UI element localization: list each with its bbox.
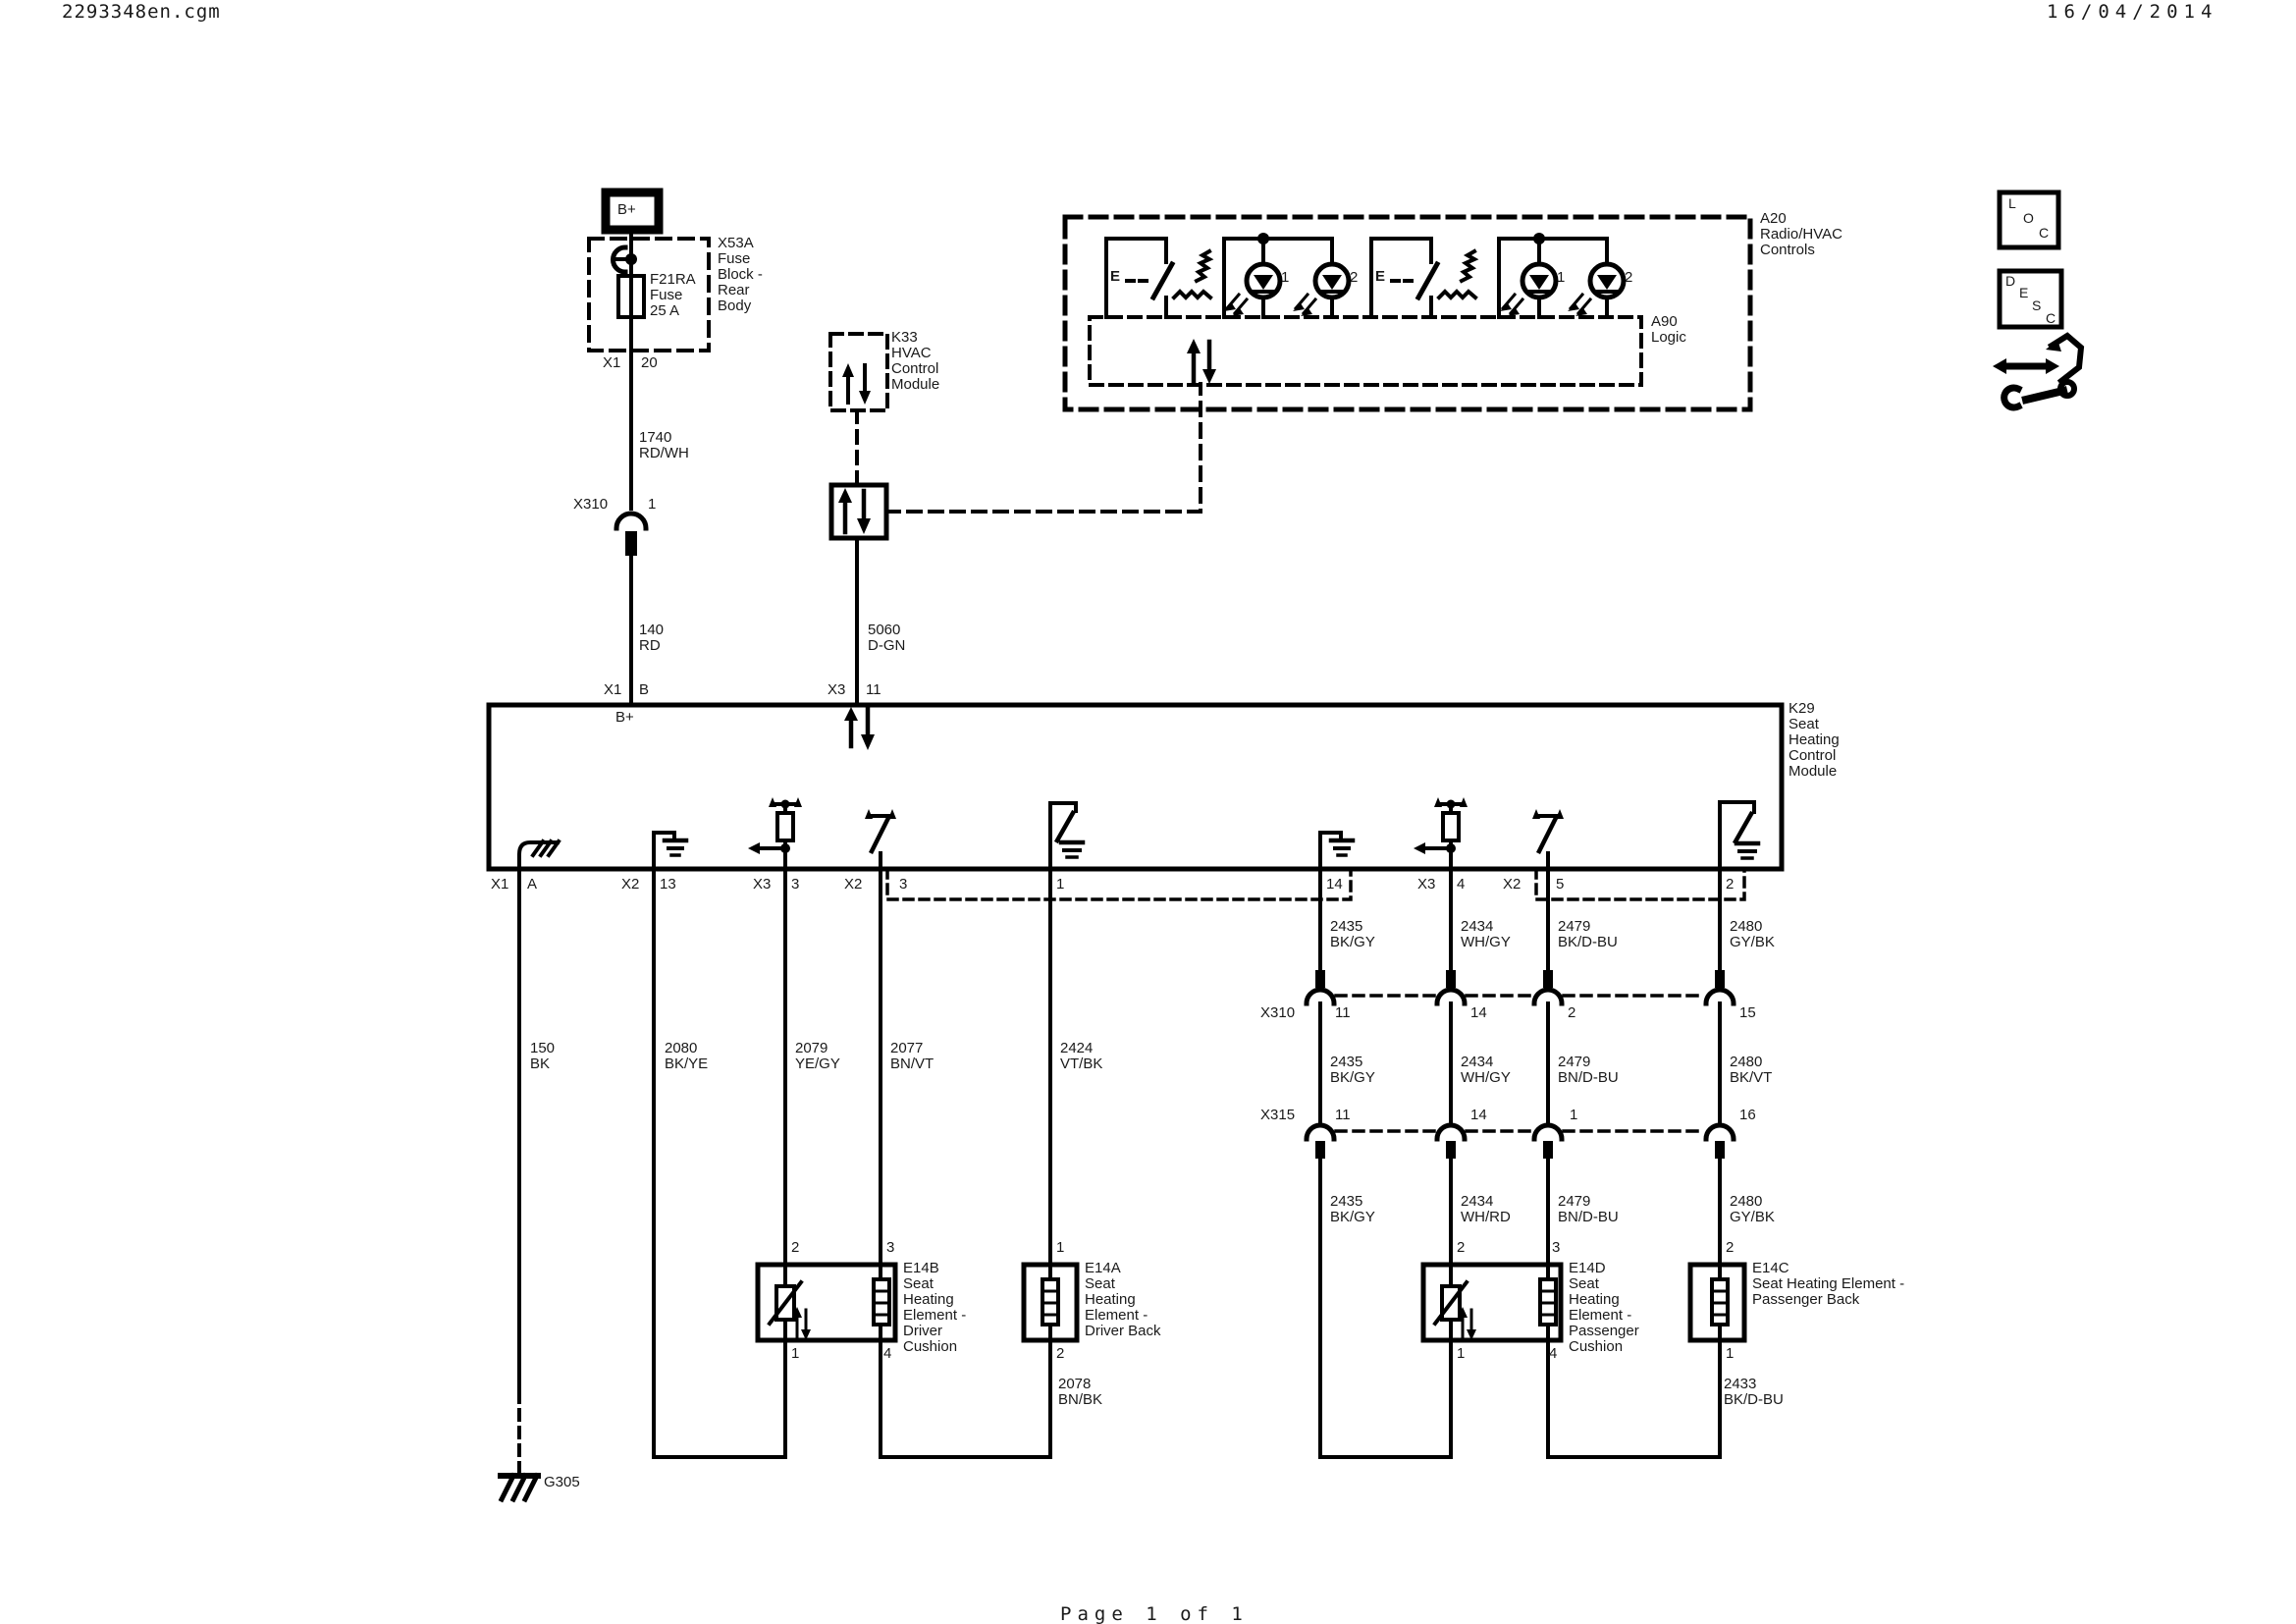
k29-module-box: [489, 705, 1782, 869]
e14d-label: E14D Seat Heating Element - Passenger Cu…: [1569, 1261, 1639, 1355]
loc-icon-letter: L: [2008, 196, 2016, 210]
wire-140-label: 140 RD: [639, 623, 664, 654]
k29-bottom-pin: 1: [1056, 877, 1064, 893]
k29-bottom-connector: X2: [1503, 877, 1521, 893]
k33-module-box: [830, 334, 887, 410]
wire-label-2435-lower: 2435 BK/GY: [1330, 1194, 1375, 1225]
k29-internal-chassis-link: [519, 841, 559, 869]
desc-icon-letter: S: [2032, 298, 2041, 312]
k29-internal-switch-ground-1: [1050, 803, 1083, 869]
k29-bplus-label: B+: [615, 710, 634, 726]
desc-icon-letter: E: [2019, 286, 2028, 299]
e14a-pin: 2: [1056, 1346, 1064, 1362]
k29-internal-driver-output-2: [1414, 797, 1468, 869]
wrench-arrow-icon: [1993, 336, 2081, 407]
k29-bottom-connector: X3: [1417, 877, 1435, 893]
k29-top-pin-2: 11: [866, 682, 881, 698]
x310-top-connector-label: X310: [573, 497, 608, 513]
wire-label-2479-upper: 2479 BK/D-BU: [1558, 919, 1618, 950]
serial-data-dashed-link: [886, 384, 1201, 512]
k29-top-pin-1: B: [639, 682, 649, 698]
file-name: 2293348en.cgm: [62, 1, 221, 23]
desc-icon-letter: C: [2046, 311, 2056, 325]
x315-row-pin: 11: [1335, 1108, 1351, 1123]
wire-label-2480-mid: 2480 BK/VT: [1730, 1055, 1772, 1086]
x315-connector-row: [1307, 1125, 1734, 1159]
loc-icon-letter: O: [2023, 211, 2034, 225]
x315-row-pin: 1: [1570, 1108, 1577, 1123]
desc-icon-letter: D: [2005, 274, 2015, 288]
k29-bottom-pin: 3: [899, 877, 907, 893]
page-indicator: Page 1 of 1: [1060, 1603, 1249, 1624]
e14b-pin: 3: [886, 1240, 894, 1256]
e14a-label: E14A Seat Heating Element - Driver Back: [1085, 1261, 1161, 1339]
x310-row-pin: 2: [1568, 1005, 1575, 1021]
fuse-label: F21RA Fuse 25 A: [650, 272, 696, 319]
x315-row-pin: 16: [1739, 1108, 1756, 1123]
e14d-pin: 3: [1552, 1240, 1560, 1256]
wire-5060-label: 5060 D-GN: [868, 623, 905, 654]
k29-bottom-pin: A: [527, 877, 537, 893]
wire-label-2433: 2433 BK/D-BU: [1724, 1377, 1784, 1408]
wire-label-2434-mid: 2434 WH/GY: [1461, 1055, 1511, 1086]
wire-label-2078: 2078 BN/BK: [1058, 1377, 1102, 1408]
a90-logic-box: [1090, 317, 1641, 385]
k29-internal-switch-ground-2: [1720, 802, 1758, 869]
seat-heater-icon-passenger: [1439, 251, 1475, 298]
k29-internal-driver-output-1: [748, 797, 802, 869]
k29-dashed-link-right: [1536, 869, 1744, 899]
wire-label-2480-lower: 2480 GY/BK: [1730, 1194, 1775, 1225]
wire-2433-bkdbu: [1548, 1340, 1720, 1457]
k29-bottom-pin: 14: [1326, 877, 1343, 893]
wire-label-2077: 2077 BN/VT: [890, 1041, 934, 1072]
k29-top-connector-2: X3: [828, 682, 845, 698]
e14d-pin: 2: [1457, 1240, 1465, 1256]
x310-row-pin: 15: [1739, 1005, 1756, 1021]
a20-label: A20 Radio/HVAC Controls: [1760, 211, 1842, 258]
wire-1740-label: 1740 RD/WH: [639, 430, 689, 461]
wire-2435-bkgy: [1320, 869, 1451, 1457]
wire-label-150: 150 BK: [530, 1041, 555, 1072]
fuse-out-pin: 20: [641, 355, 658, 371]
wire-label-2479-lower: 2479 BN/D-BU: [1558, 1194, 1619, 1225]
fuse-clip-icon: [614, 247, 638, 272]
ground-g305-label: G305: [544, 1475, 580, 1490]
ground-g305-icon: [501, 1476, 538, 1499]
wiring-diagram-page: 2293348en.cgm 16/04/2014 Page 1 of 1 B+ …: [0, 0, 2296, 1624]
e14c-label: E14C Seat Heating Element - Passenger Ba…: [1752, 1261, 1904, 1308]
wire-label-2079: 2079 YE/GY: [795, 1041, 840, 1072]
e14b-label: E14B Seat Heating Element - Driver Cushi…: [903, 1261, 966, 1355]
e14d-element-box: [1423, 1265, 1561, 1340]
k29-top-connector-1: X1: [604, 682, 621, 698]
led-label: 1: [1557, 270, 1565, 286]
fuse-out-connector: X1: [603, 355, 620, 371]
serial-data-node-box: [831, 485, 886, 538]
k29-dashed-link-left: [887, 869, 1351, 899]
wire-label-2424: 2424 VT/BK: [1060, 1041, 1102, 1072]
diagram-geometry: [0, 0, 2296, 1624]
wire-2078-bnbk: [881, 1340, 1050, 1457]
wire-label-2435-mid: 2435 BK/GY: [1330, 1055, 1375, 1086]
e14b-pin: 4: [883, 1346, 891, 1362]
k29-bottom-pin: 5: [1556, 877, 1564, 893]
switch-contact-label-driver: E: [1110, 269, 1120, 285]
x310-top-pin: 1: [648, 497, 656, 513]
bplus-terminal-label: B+: [617, 202, 636, 218]
e14b-element-box: [758, 1265, 895, 1340]
wire-label-2434-lower: 2434 WH/RD: [1461, 1194, 1511, 1225]
k29-bottom-pin: 3: [791, 877, 799, 893]
x310-row-pin: 14: [1470, 1005, 1487, 1021]
e14c-pin: 2: [1726, 1240, 1734, 1256]
e14d-pin: 1: [1457, 1346, 1465, 1362]
e14d-pin: 4: [1549, 1346, 1557, 1362]
k29-label: K29 Seat Heating Control Module: [1789, 701, 1840, 780]
k29-bottom-connector: X1: [491, 877, 508, 893]
led-label: 1: [1281, 270, 1289, 286]
led-label: 2: [1625, 270, 1632, 286]
wire-label-2080: 2080 BK/YE: [665, 1041, 708, 1072]
loc-icon-letter: C: [2039, 226, 2049, 240]
fuse-block-label: X53A Fuse Block - Rear Body: [718, 236, 763, 314]
e14b-pin: 2: [791, 1240, 799, 1256]
x310-inline-connector-top: [616, 514, 646, 556]
k29-internal-switch-2: [1532, 809, 1564, 869]
k29-serial-arrows: [844, 707, 875, 750]
x310-row-label: X310: [1260, 1005, 1295, 1021]
k29-internal-ground-1: [654, 833, 686, 869]
x310-row-pin: 11: [1335, 1005, 1351, 1021]
k29-bottom-connector: X3: [753, 877, 771, 893]
a90-label: A90 Logic: [1651, 314, 1686, 346]
e14a-pin: 1: [1056, 1240, 1064, 1256]
wire-label-2434-upper: 2434 WH/GY: [1461, 919, 1511, 950]
wire-label-2479-mid: 2479 BN/D-BU: [1558, 1055, 1619, 1086]
k29-bottom-connector: X2: [621, 877, 639, 893]
k29-internal-ground-2: [1320, 833, 1353, 869]
k29-internal-switch-1: [865, 809, 896, 869]
seat-heater-icon-driver: [1174, 251, 1210, 298]
led-label: 2: [1350, 270, 1358, 286]
k29-bottom-connector: X2: [844, 877, 862, 893]
wire-label-2435-upper: 2435 BK/GY: [1330, 919, 1375, 950]
date-stamp: 16/04/2014: [2047, 1, 2217, 23]
e14b-pin: 1: [791, 1346, 799, 1362]
wire-label-2480-upper: 2480 GY/BK: [1730, 919, 1775, 950]
x315-row-pin: 14: [1470, 1108, 1487, 1123]
k29-bottom-pin: 4: [1457, 877, 1465, 893]
x310-connector-row: [1307, 970, 1734, 1003]
k29-bottom-pin: 13: [660, 877, 676, 893]
e14c-pin: 1: [1726, 1346, 1734, 1362]
wire-2080-bkye: [654, 869, 785, 1457]
k29-bottom-pin: 2: [1726, 877, 1734, 893]
e14c-element-box: [1690, 1265, 1744, 1340]
x315-row-label: X315: [1260, 1108, 1295, 1123]
k33-label: K33 HVAC Control Module: [891, 330, 939, 393]
switch-contact-label-passenger: E: [1375, 269, 1385, 285]
